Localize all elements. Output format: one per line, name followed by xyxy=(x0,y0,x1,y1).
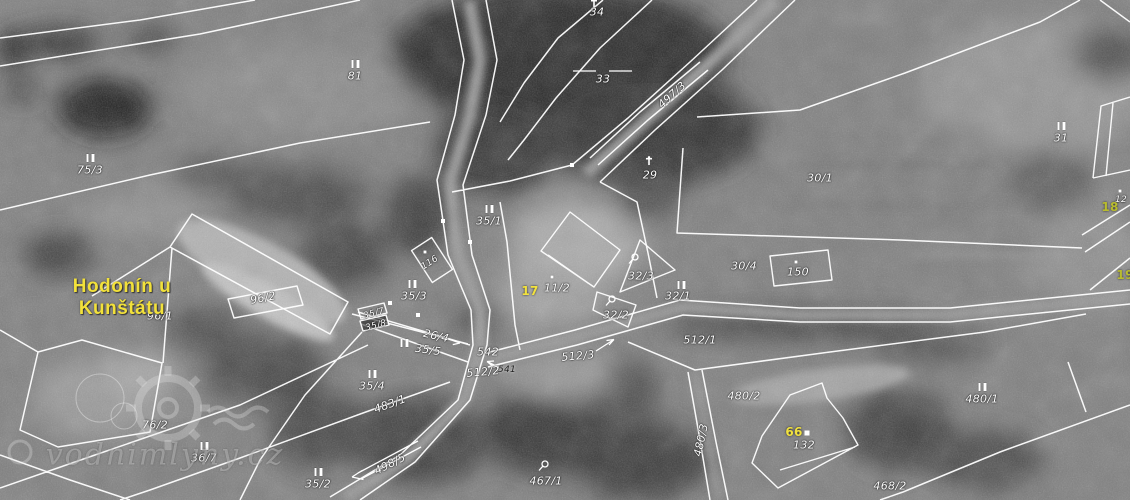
landmark-symbol xyxy=(644,156,655,167)
map-canvas[interactable]: 348133497/375/32930/13135/111635/311/217… xyxy=(0,0,1130,500)
meadow-symbol xyxy=(407,280,418,288)
meadow-symbol xyxy=(199,442,210,450)
parcel-number-label: 483/1 xyxy=(372,392,408,416)
meadow-symbol xyxy=(313,468,324,476)
parcel-number-label: 480/2 xyxy=(727,390,760,403)
parcel-number-label: 31 xyxy=(1054,132,1069,145)
meadow-symbol xyxy=(977,383,988,391)
building-point-dot xyxy=(551,276,554,279)
parcel-number-label: 498/5 xyxy=(372,451,407,478)
parcel-number-label: 35/1 xyxy=(476,215,502,228)
house-number-label: 66 xyxy=(785,425,802,439)
parcel-number-label: 497/3 xyxy=(655,79,688,111)
meadow-symbol xyxy=(399,339,410,347)
parcel-number-label: 96/2 xyxy=(249,289,277,307)
parcel-number-label: 512/3 xyxy=(561,348,595,364)
parcel-number-label: 541 xyxy=(498,365,516,375)
label-layer: 348133497/375/32930/13135/111635/311/217… xyxy=(0,0,1130,500)
parcel-number-label: 116 xyxy=(420,254,441,272)
parcel-number-label: 32/2 xyxy=(603,309,629,322)
parcel-number-label: 480/3 xyxy=(691,422,711,457)
meadow-symbol xyxy=(676,281,687,289)
parcel-number-label: 467/1 xyxy=(529,475,562,488)
meadow-symbol xyxy=(350,60,361,68)
building-point-dot xyxy=(1119,190,1122,193)
building-point-dot xyxy=(424,251,427,254)
tree-symbol xyxy=(628,253,641,266)
tree-symbol xyxy=(538,460,551,473)
parcel-number-label: 32/3 xyxy=(628,270,654,283)
parcel-number-label: 512/1 xyxy=(683,334,716,347)
house-number-label: 19 xyxy=(1116,268,1130,282)
parcel-number-label: 36/7 xyxy=(191,452,217,465)
parcel-number-label: 468/2 xyxy=(873,480,906,493)
parcel-number-label: 29 xyxy=(643,169,658,182)
parcel-number-label: 75/3 xyxy=(77,164,103,177)
parcel-number-label: 542 xyxy=(477,346,499,359)
place-name-label: Hodonín u Kunštátu xyxy=(73,276,171,320)
meadow-symbol xyxy=(85,154,96,162)
parcel-number-label: 35/4 xyxy=(359,380,385,393)
parcel-number-label: 35/3 xyxy=(401,290,427,303)
place-name-line2: Kunštátu xyxy=(73,298,171,320)
parcel-number-label: 32/1 xyxy=(665,290,691,303)
building-point-square xyxy=(805,431,810,436)
building-point-dot xyxy=(795,261,798,264)
parcel-number-label: 11/2 xyxy=(544,282,570,295)
parcel-number-label: 132 xyxy=(793,439,815,452)
parcel-number-label: 512/2 xyxy=(466,364,500,380)
parcel-number-label: 35/2 xyxy=(305,478,331,491)
parcel-number-label: 150 xyxy=(787,266,809,279)
meadow-symbol xyxy=(1056,122,1067,130)
landmark-symbol xyxy=(589,0,600,9)
parcel-number-label: 33 xyxy=(596,73,611,86)
parcel-number-label: 30/4 xyxy=(731,260,757,273)
parcel-number-label: 30/1 xyxy=(807,172,833,185)
tree-symbol xyxy=(605,295,618,308)
place-name-line1: Hodonín u xyxy=(73,276,171,298)
parcel-number-label: 81 xyxy=(348,70,363,83)
house-number-label: 17 xyxy=(521,284,538,298)
house-number-label: 18 xyxy=(1101,200,1118,214)
parcel-number-label: 480/1 xyxy=(965,393,998,406)
parcel-number-label: 76/2 xyxy=(142,419,168,432)
meadow-symbol xyxy=(367,370,378,378)
meadow-symbol xyxy=(484,205,495,213)
parcel-number-label: 35/5 xyxy=(414,342,441,358)
